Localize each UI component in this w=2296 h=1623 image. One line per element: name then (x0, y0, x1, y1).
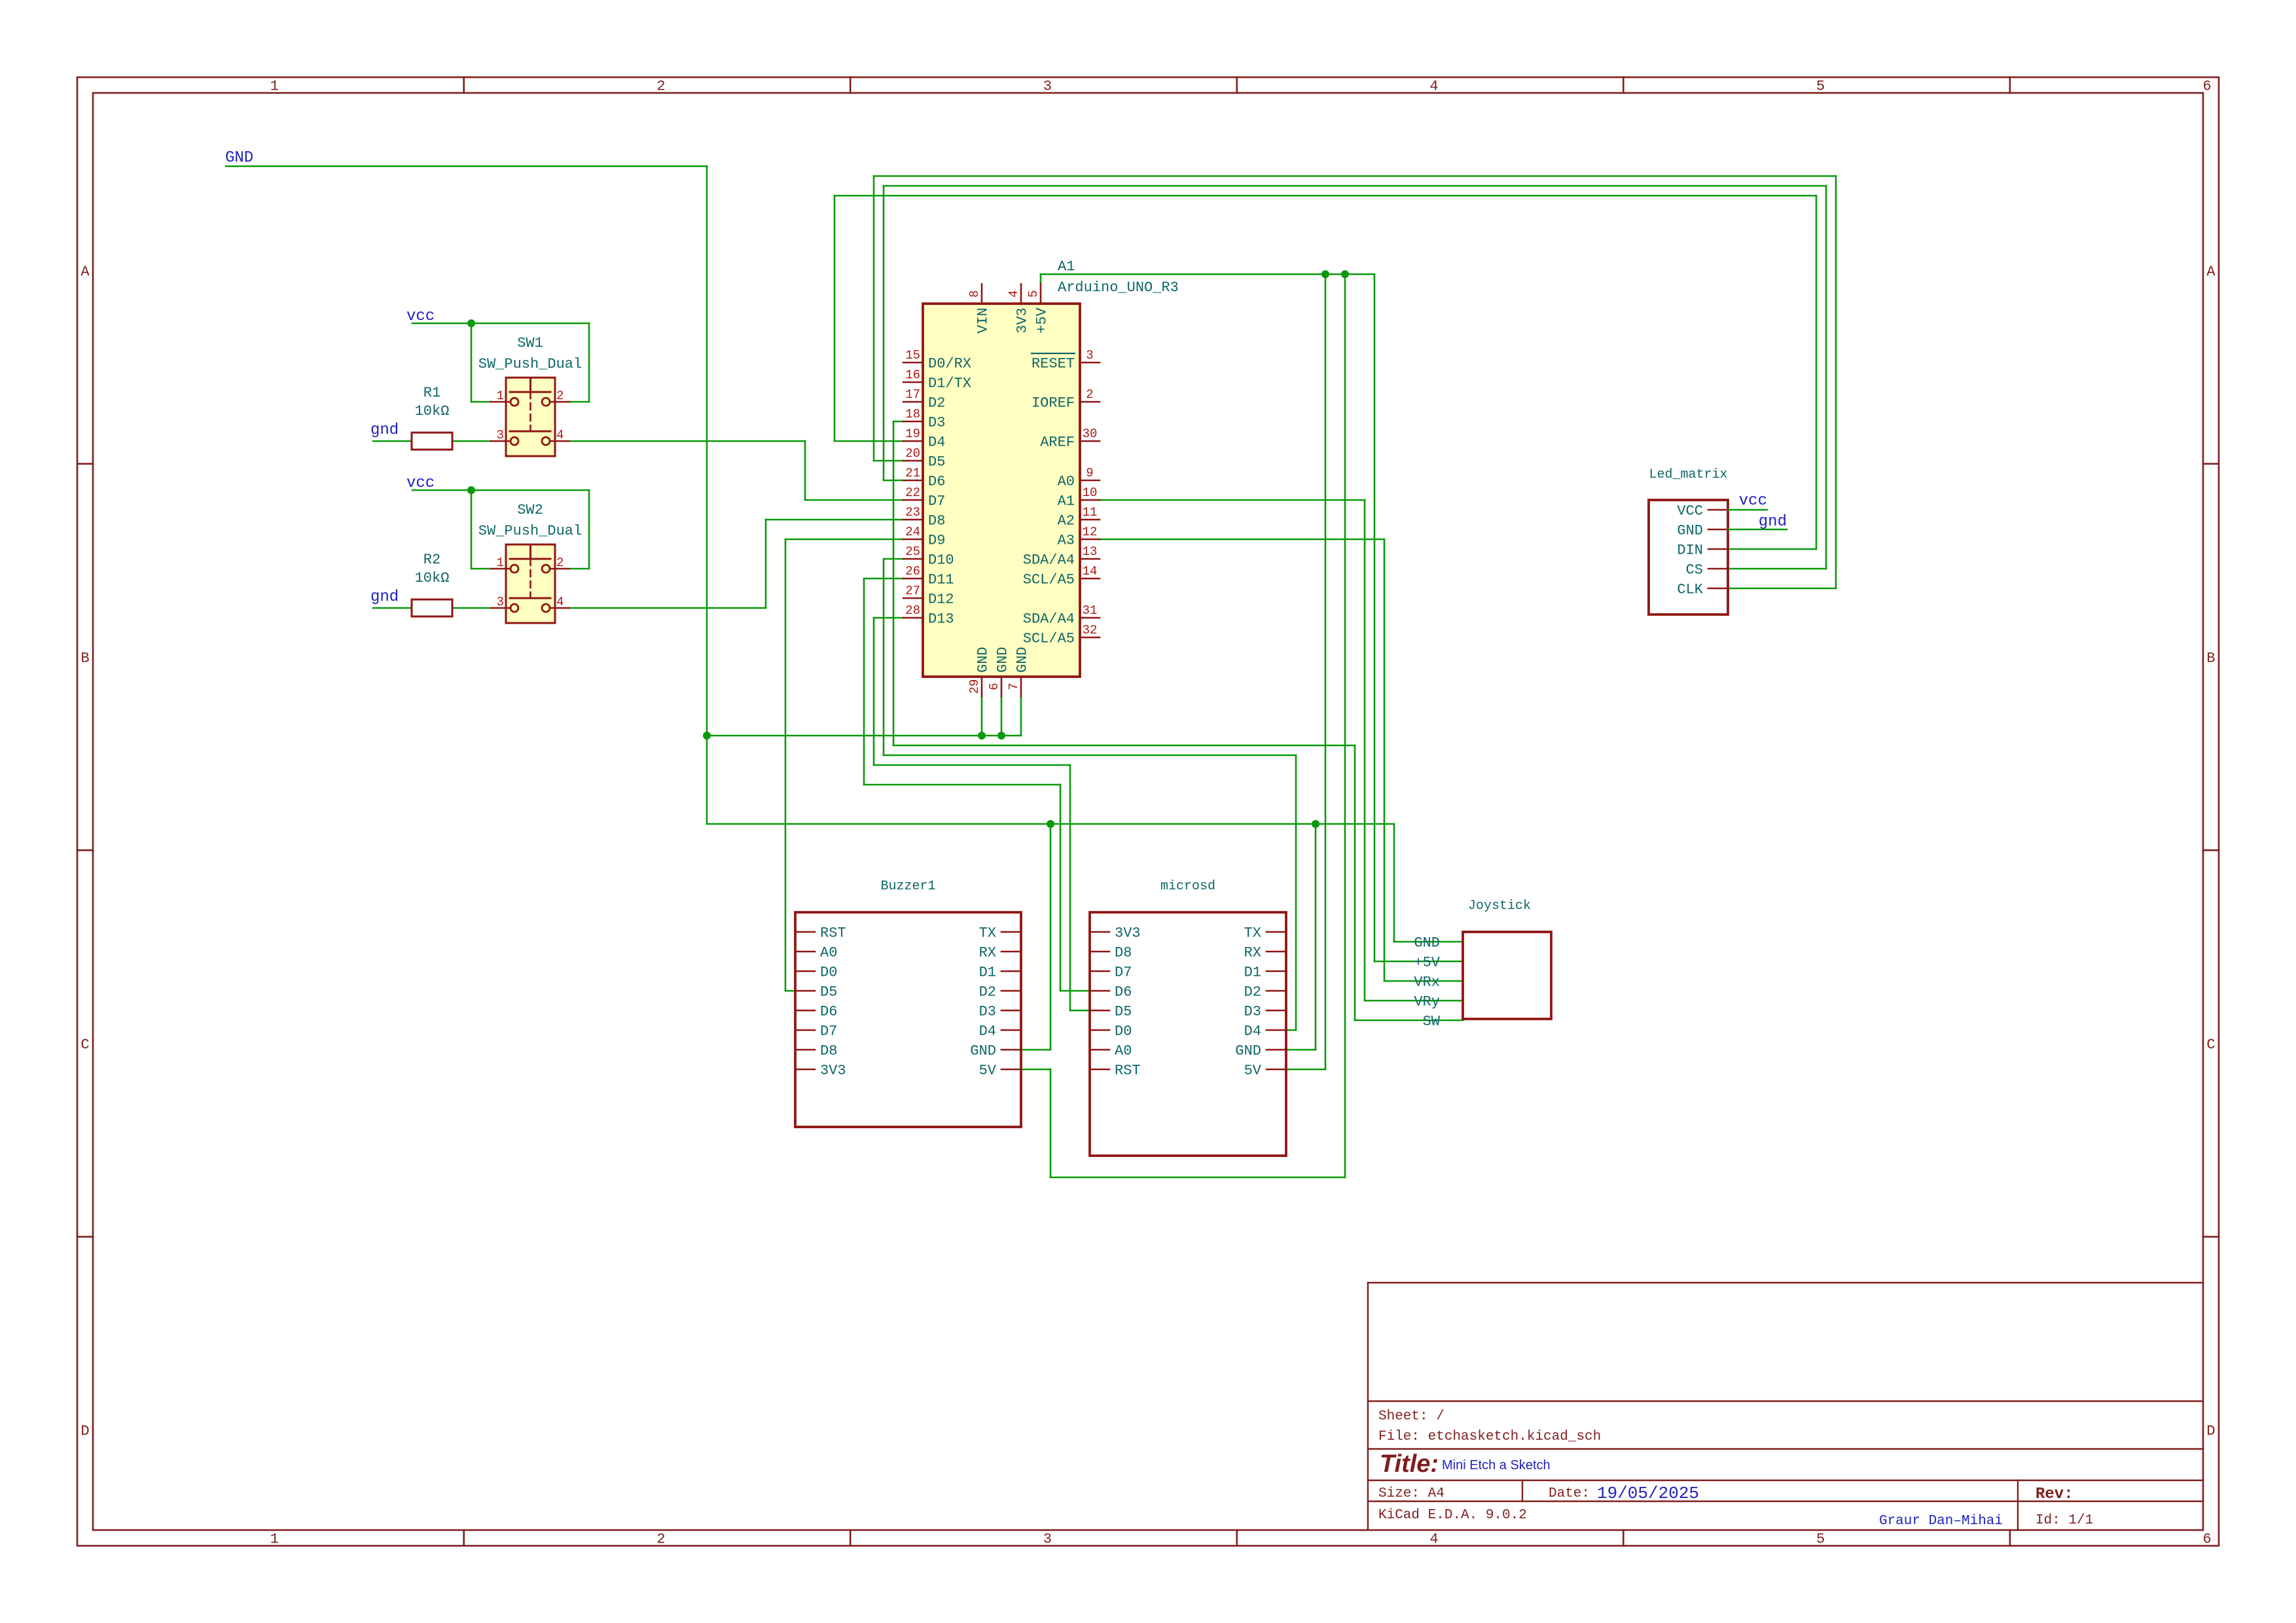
svg-text:32: 32 (1083, 623, 1098, 637)
svg-text:+5V: +5V (1414, 955, 1440, 971)
svg-text:D5: D5 (820, 984, 837, 1001)
svg-text:Rev:: Rev: (2036, 1486, 2073, 1503)
svg-text:VRx: VRx (1414, 974, 1440, 991)
svg-text:SDA/A4: SDA/A4 (1023, 552, 1075, 569)
svg-text:30: 30 (1083, 427, 1098, 441)
svg-text:D7: D7 (1115, 965, 1132, 981)
svg-text:D7: D7 (928, 493, 945, 510)
svg-text:GND: GND (970, 1043, 996, 1060)
svg-text:1: 1 (270, 1531, 279, 1548)
svg-text:10: 10 (1083, 486, 1098, 500)
svg-text:Led_matrix: Led_matrix (1649, 467, 1727, 482)
svg-text:1: 1 (497, 389, 504, 403)
svg-text:2: 2 (1086, 387, 1093, 402)
svg-text:SCL/A5: SCL/A5 (1023, 572, 1075, 588)
svg-text:19: 19 (905, 427, 920, 441)
svg-text:GND: GND (1235, 1043, 1261, 1060)
svg-text:SDA/A4: SDA/A4 (1023, 611, 1075, 628)
svg-text:SW1: SW1 (517, 335, 543, 351)
svg-text:File: etchasketch.kicad_sch: File: etchasketch.kicad_sch (1378, 1429, 1601, 1444)
svg-text:D6: D6 (820, 1004, 837, 1020)
svg-text:3: 3 (497, 595, 504, 609)
svg-text:D1/TX: D1/TX (928, 376, 971, 392)
svg-text:D5: D5 (928, 454, 945, 471)
svg-text:5: 5 (1816, 79, 1825, 95)
svg-text:D4: D4 (928, 435, 945, 451)
svg-text:D2: D2 (928, 395, 945, 412)
svg-text:2: 2 (656, 79, 665, 95)
svg-text:A3: A3 (1058, 533, 1075, 549)
svg-text:A1: A1 (1058, 259, 1075, 275)
svg-text:A0: A0 (820, 945, 837, 961)
svg-text:26: 26 (905, 564, 920, 579)
svg-text:D4: D4 (1244, 1024, 1261, 1040)
svg-text:GND: GND (225, 149, 253, 167)
svg-text:D3: D3 (1244, 1004, 1261, 1020)
svg-text:D3: D3 (979, 1004, 996, 1020)
svg-text:GND: GND (995, 647, 1011, 673)
svg-text:D0: D0 (1115, 1024, 1132, 1040)
svg-text:8: 8 (967, 290, 982, 297)
svg-text:16: 16 (905, 368, 920, 382)
svg-text:A0: A0 (1115, 1043, 1132, 1060)
svg-text:22: 22 (905, 486, 920, 500)
svg-text:2: 2 (556, 389, 564, 403)
svg-text:VRy: VRy (1414, 994, 1440, 1010)
svg-text:24: 24 (905, 525, 920, 539)
svg-text:IOREF: IOREF (1031, 395, 1075, 412)
svg-text:Id: 1/1: Id: 1/1 (2036, 1513, 2093, 1528)
svg-text:D6: D6 (1115, 984, 1132, 1001)
svg-text:5V: 5V (979, 1063, 997, 1079)
svg-text:4: 4 (556, 595, 564, 609)
svg-text:3: 3 (1043, 79, 1052, 95)
svg-text:SW_Push_Dual: SW_Push_Dual (478, 523, 582, 539)
svg-text:D11: D11 (928, 572, 954, 588)
svg-text:3V3: 3V3 (1014, 308, 1031, 334)
svg-text:6: 6 (2202, 1531, 2211, 1548)
svg-text:3: 3 (497, 428, 504, 442)
svg-text:TX: TX (1244, 925, 1261, 942)
svg-text:R1: R1 (423, 385, 440, 401)
svg-text:4: 4 (1429, 1531, 1438, 1548)
svg-text:D8: D8 (928, 513, 945, 529)
svg-text:15: 15 (905, 348, 920, 363)
svg-text:SW_Push_Dual: SW_Push_Dual (478, 356, 582, 372)
svg-text:5: 5 (1816, 1531, 1825, 1548)
svg-text:VCC: VCC (1677, 503, 1703, 520)
svg-text:B: B (2206, 651, 2215, 667)
svg-text:2: 2 (556, 556, 564, 570)
svg-text:D1: D1 (979, 965, 996, 981)
svg-text:5V: 5V (1244, 1063, 1262, 1079)
svg-text:C: C (81, 1037, 89, 1053)
svg-text:1: 1 (497, 556, 504, 570)
svg-text:+5V: +5V (1034, 307, 1050, 333)
svg-text:CS: CS (1686, 562, 1703, 579)
svg-text:RST: RST (820, 925, 846, 942)
svg-text:AREF: AREF (1040, 435, 1075, 451)
svg-text:D5: D5 (1115, 1004, 1132, 1020)
svg-text:RX: RX (1244, 945, 1261, 961)
svg-text:11: 11 (1083, 505, 1098, 520)
svg-text:B: B (81, 651, 89, 667)
svg-text:D: D (81, 1423, 89, 1440)
svg-text:Mini Etch a Sketch: Mini Etch a Sketch (1442, 1458, 1551, 1472)
svg-text:Buzzer1: Buzzer1 (880, 879, 935, 894)
svg-text:gnd: gnd (1759, 513, 1787, 531)
svg-text:6: 6 (987, 683, 1001, 690)
svg-text:27: 27 (905, 584, 920, 598)
svg-text:6: 6 (2202, 79, 2211, 95)
svg-text:GND: GND (1414, 935, 1440, 952)
svg-text:3V3: 3V3 (820, 1063, 846, 1079)
svg-text:Joystick: Joystick (1468, 899, 1531, 914)
svg-text:Sheet: /: Sheet: / (1378, 1409, 1444, 1424)
svg-text:D2: D2 (1244, 984, 1261, 1001)
svg-text:7: 7 (1007, 683, 1021, 690)
svg-text:D12: D12 (928, 592, 954, 608)
svg-text:D1: D1 (1244, 965, 1261, 981)
svg-text:RESET: RESET (1031, 356, 1075, 372)
svg-text:31: 31 (1083, 603, 1098, 618)
svg-text:Title:: Title: (1380, 1450, 1439, 1478)
svg-text:RX: RX (979, 945, 996, 961)
svg-text:28: 28 (905, 603, 920, 618)
svg-text:SCL/A5: SCL/A5 (1023, 631, 1075, 647)
svg-text:C: C (2206, 1037, 2215, 1053)
svg-text:4: 4 (556, 428, 564, 442)
svg-text:14: 14 (1083, 564, 1098, 579)
svg-text:CLK: CLK (1677, 582, 1703, 598)
svg-text:13: 13 (1083, 544, 1098, 559)
svg-text:3: 3 (1043, 1531, 1052, 1548)
svg-text:D2: D2 (979, 984, 996, 1001)
svg-text:17: 17 (905, 387, 920, 402)
svg-text:D8: D8 (820, 1043, 837, 1060)
svg-text:VIN: VIN (975, 308, 992, 334)
svg-text:GND: GND (1014, 647, 1031, 673)
svg-text:21: 21 (905, 466, 920, 480)
svg-text:2: 2 (656, 1531, 665, 1548)
svg-text:RST: RST (1115, 1063, 1141, 1079)
svg-text:Graur Dan–Mihai: Graur Dan–Mihai (1879, 1514, 2003, 1529)
svg-text:microsd: microsd (1160, 879, 1215, 894)
svg-text:25: 25 (905, 544, 920, 559)
svg-text:4: 4 (1429, 79, 1438, 95)
svg-text:D0/RX: D0/RX (928, 356, 971, 372)
svg-text:5: 5 (1026, 290, 1041, 297)
svg-text:10kΩ: 10kΩ (415, 570, 450, 586)
svg-text:Size: A4: Size: A4 (1378, 1486, 1444, 1501)
svg-text:D7: D7 (820, 1024, 837, 1040)
svg-text:vcc: vcc (1739, 492, 1767, 510)
svg-text:D4: D4 (979, 1024, 996, 1040)
svg-text:R2: R2 (423, 552, 440, 568)
svg-text:D9: D9 (928, 533, 945, 549)
svg-text:D10: D10 (928, 552, 954, 569)
svg-text:A: A (81, 264, 90, 280)
svg-text:20: 20 (905, 446, 920, 461)
svg-text:4: 4 (1007, 290, 1021, 297)
svg-text:GND: GND (1677, 523, 1703, 539)
svg-text:GND: GND (975, 647, 992, 673)
svg-text:D13: D13 (928, 611, 954, 628)
svg-text:1: 1 (270, 79, 279, 95)
svg-text:3V3: 3V3 (1115, 925, 1141, 942)
svg-text:A0: A0 (1058, 474, 1075, 490)
svg-text:A1: A1 (1058, 493, 1075, 510)
svg-text:A2: A2 (1058, 513, 1075, 529)
svg-text:SW: SW (1423, 1014, 1441, 1030)
svg-text:Date:: Date: (1549, 1486, 1590, 1501)
svg-text:12: 12 (1083, 525, 1098, 539)
svg-text:SW2: SW2 (517, 502, 543, 518)
svg-text:18: 18 (905, 407, 920, 421)
svg-text:Arduino_UNO_R3: Arduino_UNO_R3 (1058, 279, 1179, 296)
svg-text:D3: D3 (928, 415, 945, 431)
svg-text:gnd: gnd (370, 421, 399, 439)
svg-text:D8: D8 (1115, 945, 1132, 961)
svg-text:D6: D6 (928, 474, 945, 490)
svg-text:A: A (2206, 264, 2215, 280)
svg-text:DIN: DIN (1677, 543, 1703, 559)
svg-text:TX: TX (979, 925, 996, 942)
svg-text:29: 29 (967, 679, 982, 694)
svg-text:D: D (2206, 1423, 2215, 1440)
svg-text:9: 9 (1086, 466, 1093, 480)
svg-text:10kΩ: 10kΩ (415, 403, 450, 419)
svg-text:gnd: gnd (370, 588, 399, 606)
svg-text:19/05/2025: 19/05/2025 (1597, 1484, 1699, 1503)
svg-text:D0: D0 (820, 965, 837, 981)
svg-text:3: 3 (1086, 348, 1093, 363)
svg-text:23: 23 (905, 505, 920, 520)
svg-text:KiCad E.D.A. 9.0.2: KiCad E.D.A. 9.0.2 (1378, 1508, 1527, 1523)
